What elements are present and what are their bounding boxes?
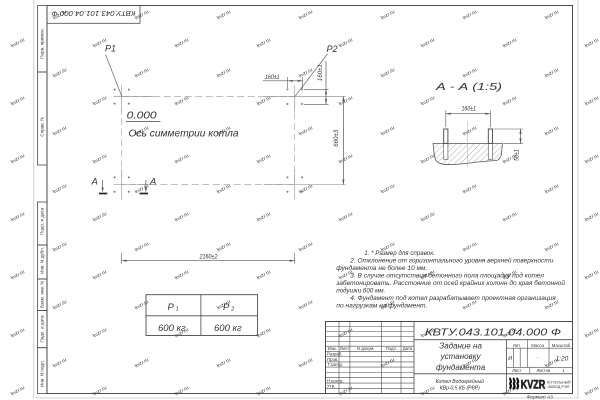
svg-text:Дата: Дата [403, 346, 413, 351]
svg-text:1. * Размер для справок.: 1. * Размер для справок. [364, 250, 435, 257]
svg-text:Листов: Листов [536, 368, 551, 373]
svg-text:КВТУ.043.101.04.000 Ф: КВТУ.043.101.04.000 Ф [51, 9, 135, 18]
svg-text:0.000: 0.000 [127, 110, 157, 122]
svg-text:Задание на: Задание на [439, 342, 482, 351]
svg-text:Лист: Лист [512, 368, 521, 373]
svg-text:1: 1 [176, 307, 179, 313]
svg-text:P: P [223, 302, 230, 313]
svg-text:N докум.: N докум. [357, 346, 374, 351]
svg-text:2160±2: 2160±2 [199, 255, 218, 261]
svg-text:Подп. и дата: Подп. и дата [40, 208, 45, 236]
svg-text:забетонировать. Расстояние от: забетонировать. Расстояние от осей крайн… [335, 280, 565, 287]
svg-text:P1: P1 [105, 44, 116, 54]
svg-text:КВр-0,5 КБ (РВР): КВр-0,5 КБ (РВР) [440, 385, 480, 391]
svg-text:P: P [168, 302, 175, 313]
svg-text:A: A [149, 176, 156, 187]
svg-text:160±1: 160±1 [462, 107, 477, 113]
svg-text:Инв. N подл.: Инв. N подл. [40, 360, 45, 387]
svg-text:ЗАВОД РЭП: ЗАВОД РЭП [548, 385, 570, 389]
svg-text:Формат А3: Формат А3 [527, 395, 554, 400]
svg-text:Подп.: Подп. [386, 346, 397, 351]
svg-text:Масса: Масса [531, 343, 544, 348]
svg-text:3. В случае отсутствия бетонно: 3. В случае отсутствия бетонного пола пл… [350, 273, 544, 280]
svg-text:2: 2 [230, 307, 234, 313]
svg-text:установку: установку [440, 352, 482, 361]
svg-text:660±3: 660±3 [334, 129, 340, 147]
svg-text:Масштаб: Масштаб [552, 343, 571, 348]
svg-text:Взам. инв. N: Взам. инв. N [40, 281, 45, 308]
svg-text:2. Отклонение от горизонтально: 2. Отклонение от горизонтального уровня … [349, 258, 554, 265]
svg-text:Ось симметрии котла: Ось симметрии котла [129, 129, 239, 140]
svg-text:600 кг: 600 кг [214, 323, 242, 334]
svg-text:И: И [508, 356, 512, 362]
svg-text:Лист: Лист [340, 346, 349, 351]
svg-text:1:20: 1:20 [556, 355, 569, 362]
svg-text:Инв. N дубл.: Инв. N дубл. [40, 247, 45, 274]
svg-text:Утв.: Утв. [327, 384, 335, 389]
svg-text:Лит.: Лит. [513, 343, 521, 348]
svg-text:160±1: 160±1 [318, 64, 324, 81]
svg-text:Перв. примен.: Перв. примен. [40, 28, 45, 59]
svg-text:Котел Водогрейный: Котел Водогрейный [436, 378, 485, 385]
svg-text:Пров.: Пров. [327, 357, 338, 362]
svg-text:Подп. и дата: Подп. и дата [40, 315, 45, 343]
svg-text:P2: P2 [327, 44, 338, 54]
svg-text:600 кг: 600 кг [158, 323, 186, 334]
svg-text:Т.контр.: Т.контр. [328, 362, 344, 367]
svg-text:4. Фундамент под котел разраба: 4. Фундамент под котел разрабатывает про… [350, 295, 556, 302]
svg-text:50±1: 50±1 [514, 149, 520, 161]
svg-text:КВТУ.043.101.04.000 Ф: КВТУ.043.101.04.000 Ф [425, 327, 561, 339]
svg-text:по нагрузкам на фундамент.: по нагрузкам на фундамент. [336, 303, 427, 310]
svg-text:160±1: 160±1 [265, 75, 280, 81]
svg-text:A: A [91, 176, 98, 187]
svg-text:подушки 600 мм.: подушки 600 мм. [336, 288, 385, 295]
svg-text:КОТЕЛЬНЫЙ: КОТЕЛЬНЫЙ [547, 380, 571, 384]
svg-text:фундамента: фундамента [436, 363, 486, 372]
svg-text:А - А (1:5): А - А (1:5) [435, 81, 502, 93]
svg-text:KVZR: KVZR [521, 377, 546, 391]
svg-text:Справ. N: Справ. N [40, 117, 45, 136]
svg-text:фундамента не более 10 мм.: фундамента не более 10 мм. [336, 265, 427, 272]
svg-text:Изм.: Изм. [328, 346, 337, 351]
